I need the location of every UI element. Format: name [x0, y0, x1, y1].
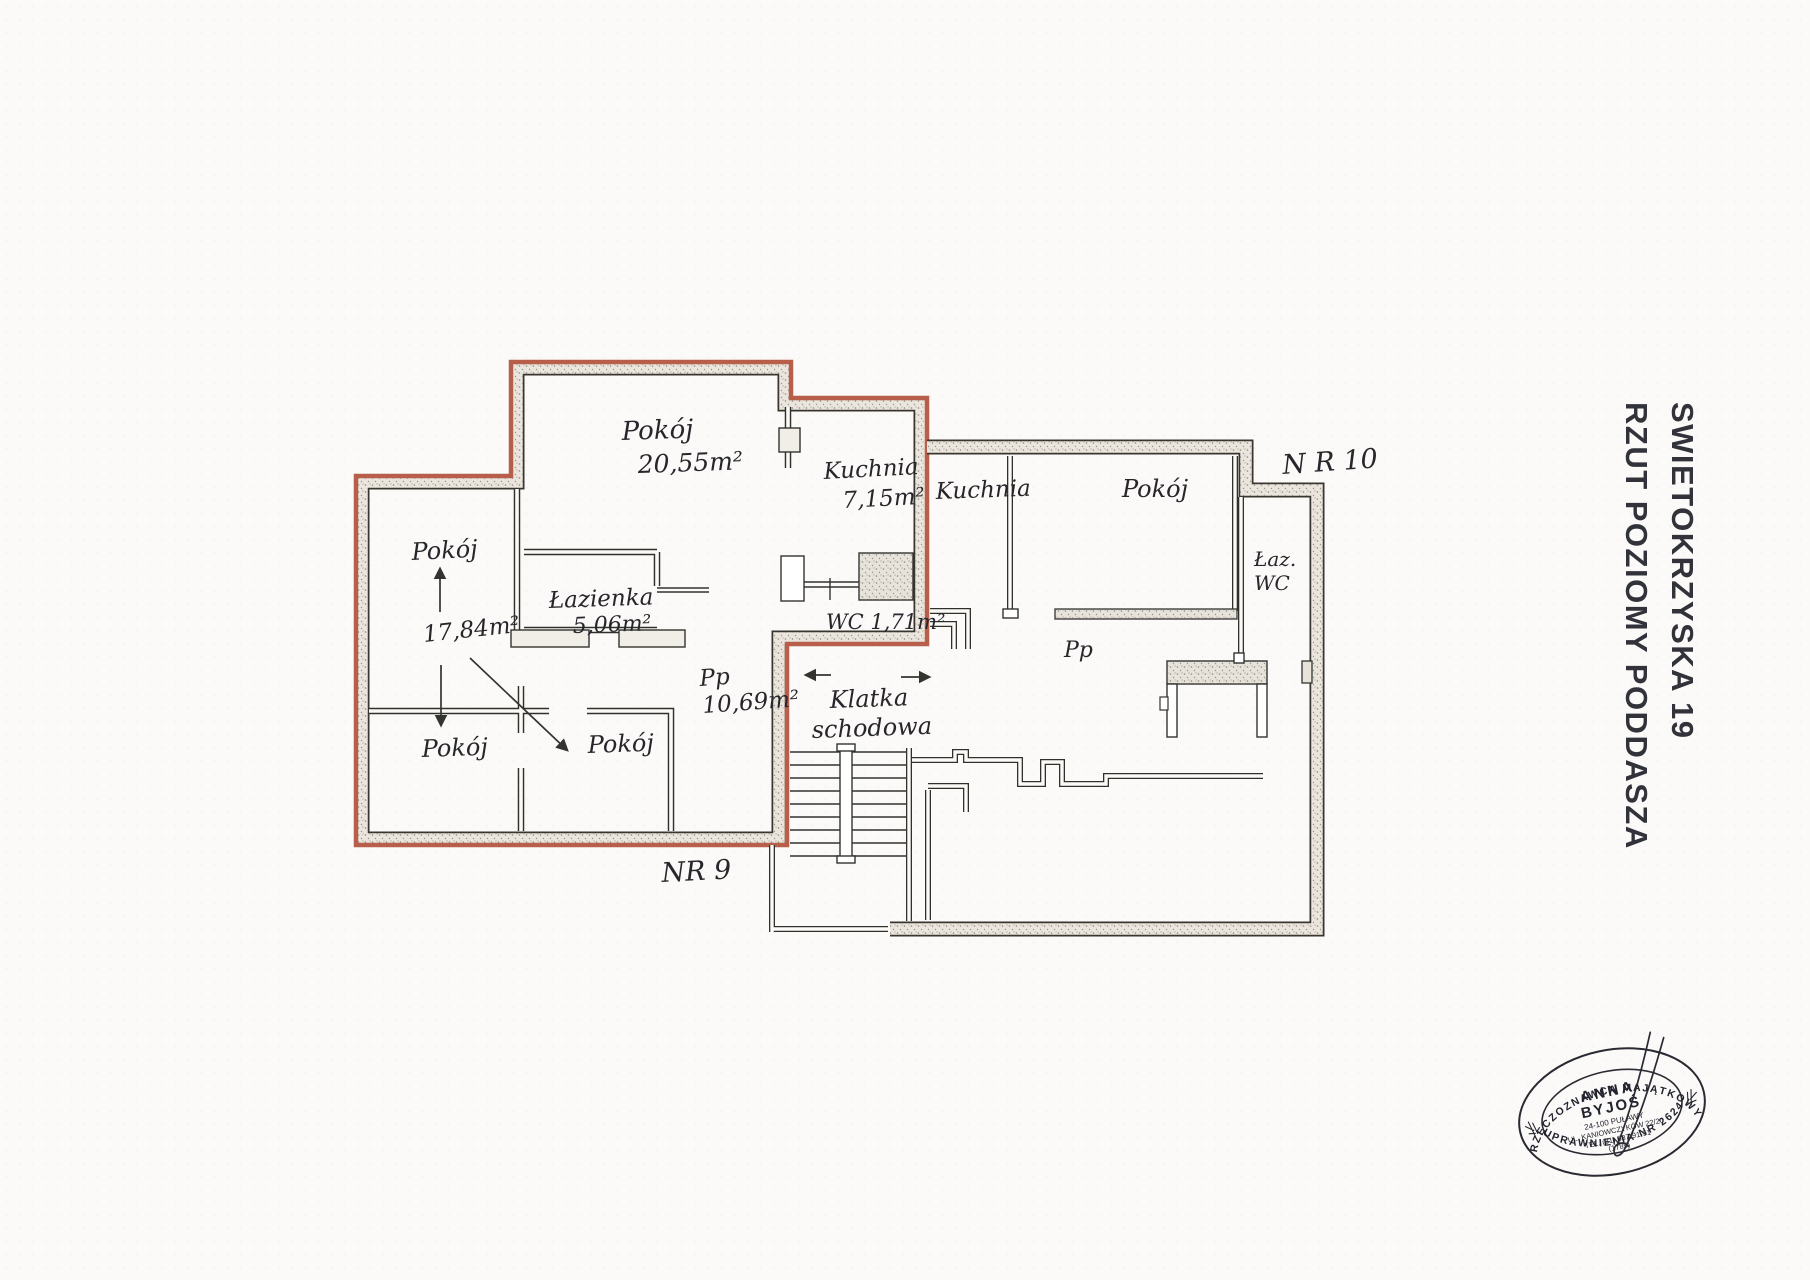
- label-pokoj-main-area: 20,55m²: [636, 446, 743, 479]
- appraiser-stamp: RZECZOZNAWCA MAJĄTKOWY UPRAWNIENIA NR 26…: [1506, 1024, 1717, 1192]
- staircase: [772, 744, 909, 932]
- label-lazienka-area: 5,06m²: [572, 611, 651, 639]
- label-wc-a9: WC 1,71m²: [826, 610, 945, 634]
- label-pokoj-left-area: 17,84m²: [422, 612, 521, 648]
- apartment10-perimeter-walls: [890, 447, 1317, 929]
- label-pokoj-main: Pokój: [620, 415, 694, 448]
- label-kuchnia-a10: Kuchnia: [934, 476, 1031, 505]
- label-kuchnia-a9-area: 7,15m²: [842, 484, 925, 514]
- stair-stringer: [837, 744, 855, 863]
- label-laz-a10: Łaz.: [1253, 547, 1296, 571]
- label-klatka-line2: schodowa: [811, 712, 932, 744]
- label-pp-a9: Pp: [698, 664, 731, 692]
- label-nr10: N R 10: [1280, 443, 1378, 481]
- label-pokoj-left: Pokój: [410, 535, 479, 567]
- label-klatka-line1: Klatka: [828, 683, 908, 714]
- builtin-closet: [1160, 653, 1267, 737]
- title-line1: SWIETOKRZYSKA 19: [1665, 402, 1700, 740]
- chimney-duct: [859, 553, 913, 600]
- label-pokoj-a10: Pokój: [1121, 475, 1189, 503]
- drawing-title: SWIETOKRZYSKA 19 RZUT POZIOMY PODDASZA: [1619, 402, 1700, 850]
- title-line2: RZUT POZIOMY PODDASZA: [1619, 402, 1654, 850]
- apartment10-interior-walls: [911, 456, 1312, 920]
- label-kuchnia-a9: Kuchnia: [822, 454, 919, 485]
- label-pokoj-bottom-center: Pokój: [586, 729, 655, 759]
- label-pokoj-bottom-left: Pokój: [420, 733, 489, 763]
- label-pp-a10: Pp: [1063, 638, 1093, 663]
- floorplan-drawing: Pokój 20,55m² Kuchnia 7,15m² Kuchnia Pok…: [0, 0, 1810, 1280]
- scanned-floorplan-page: Pokój 20,55m² Kuchnia 7,15m² Kuchnia Pok…: [0, 0, 1810, 1280]
- wc-fixtures: [781, 556, 859, 601]
- label-nr9: NR 9: [660, 854, 732, 889]
- label-lazienka: Łazienka: [547, 584, 653, 614]
- label-wc-a10: WC: [1254, 571, 1290, 595]
